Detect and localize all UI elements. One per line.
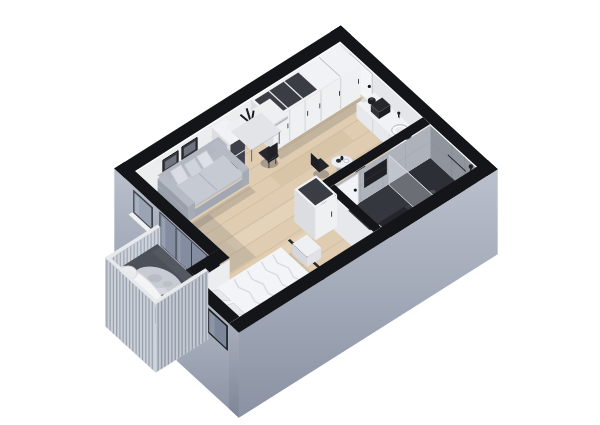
floor-plan-canvas — [0, 0, 600, 425]
apartment — [105, 25, 498, 417]
floor-plan-render — [0, 0, 600, 425]
